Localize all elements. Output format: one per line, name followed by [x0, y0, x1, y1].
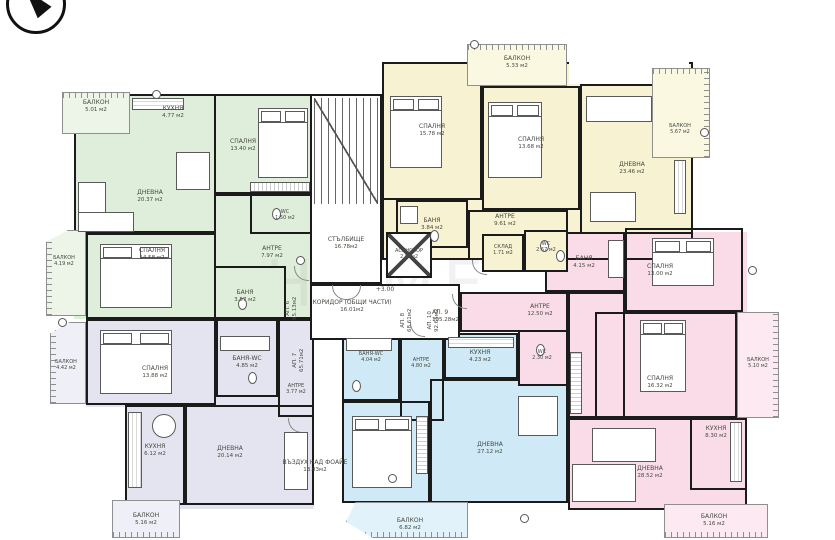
toilet — [352, 380, 361, 392]
room-ap9-wc — [518, 330, 568, 386]
room-ap6-banya — [214, 266, 286, 319]
north-arrow-icon — [6, 0, 66, 34]
reference-marker — [152, 90, 161, 99]
dining-table — [592, 428, 656, 462]
balcony-ap6-left — [46, 230, 86, 316]
reference-marker — [700, 128, 709, 137]
sofa — [78, 212, 134, 232]
sofa — [572, 464, 636, 502]
toilet — [430, 230, 439, 242]
bed — [100, 330, 172, 394]
reference-marker — [296, 256, 305, 265]
dining-table — [176, 152, 210, 190]
room-ap10-sklad — [482, 234, 524, 272]
bathtub — [346, 338, 392, 351]
wardrobe — [416, 416, 428, 474]
sofa — [284, 432, 308, 490]
exterior-cutout — [86, 407, 125, 511]
balcony-ap7-left — [50, 322, 86, 404]
bed — [652, 238, 714, 286]
bed — [488, 102, 542, 178]
wardrobe — [250, 182, 310, 192]
toilet — [556, 250, 565, 262]
bed — [640, 320, 686, 392]
dining-table — [152, 414, 176, 438]
balcony-ap9-right — [737, 312, 779, 418]
balcony-ap10-top — [467, 44, 567, 86]
sofa — [586, 96, 652, 122]
reference-marker — [470, 40, 479, 49]
kitchen-counter — [730, 422, 742, 482]
balcony-ap8-bottom — [346, 502, 468, 538]
shower — [400, 206, 418, 224]
bed — [258, 108, 308, 178]
dining-table — [518, 396, 558, 436]
room-ap7-banya-wc — [216, 319, 278, 397]
stair-flight — [314, 98, 378, 204]
toilet — [536, 344, 545, 356]
corridor-room — [310, 284, 460, 340]
dining-table — [590, 192, 636, 222]
bed — [352, 416, 412, 488]
toilet — [238, 298, 247, 310]
bathtub — [220, 336, 270, 351]
bathtub — [608, 240, 624, 278]
balcony-ap9-bottom — [664, 504, 768, 538]
reference-marker — [58, 318, 67, 327]
balcony-ap6-top — [62, 92, 130, 134]
kitchen-counter — [132, 98, 184, 110]
balcony-ap10-right — [652, 68, 710, 158]
toilet — [248, 372, 257, 384]
bed — [100, 244, 172, 308]
balcony-ap7-bottom — [112, 500, 180, 538]
room-ap9-antre-arm — [460, 292, 568, 332]
reference-marker — [388, 474, 397, 483]
room-ap7-antre — [278, 319, 314, 417]
bed — [390, 96, 442, 168]
room-ap6-wc — [250, 194, 314, 234]
floor-plan: HOME — [0, 0, 835, 540]
door-arc — [472, 260, 487, 275]
kitchen-counter — [448, 337, 514, 348]
kitchen-counter — [128, 412, 142, 488]
toilet — [272, 208, 281, 220]
elevator-shaft — [386, 232, 432, 278]
wardrobe — [570, 352, 582, 414]
reference-marker — [748, 266, 757, 275]
toilet — [540, 240, 549, 252]
reference-marker — [520, 514, 529, 523]
kitchen-counter — [674, 160, 686, 214]
